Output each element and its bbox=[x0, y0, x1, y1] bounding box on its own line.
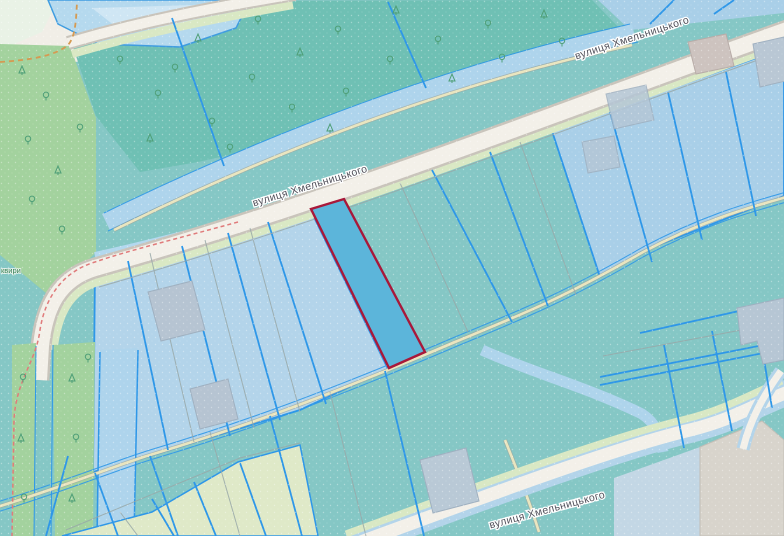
edge-partial-label: квири bbox=[1, 266, 21, 275]
map-canvas[interactable]: вулиця Хмельницького вулиця Хмельницьког… bbox=[0, 0, 784, 536]
map-svg: вулиця Хмельницького вулиця Хмельницьког… bbox=[0, 0, 784, 536]
dot-texture bbox=[0, 0, 784, 536]
